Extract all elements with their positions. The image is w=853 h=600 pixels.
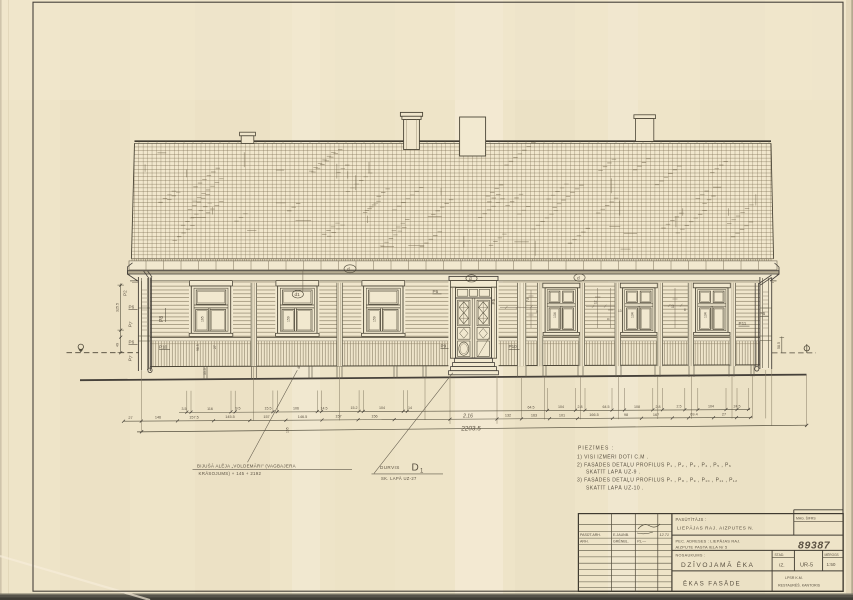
svg-text:58.5: 58.5	[777, 342, 781, 349]
svg-text:P9: P9	[441, 344, 447, 349]
svg-text:157: 157	[335, 415, 341, 419]
svg-text:145.5: 145.5	[225, 415, 235, 419]
svg-text:9: 9	[536, 310, 538, 314]
svg-text:163: 163	[531, 414, 537, 418]
svg-text:14.5: 14.5	[321, 406, 328, 410]
svg-text:LIEPĀJAS RAJ. AIZPUTES N.: LIEPĀJAS RAJ. AIZPUTES N.	[677, 525, 754, 531]
svg-text:134: 134	[553, 312, 557, 318]
svg-text:d: d	[577, 275, 580, 281]
svg-text:ARH.: ARH.	[580, 539, 589, 543]
svg-text:P8: P8	[159, 316, 165, 322]
svg-text:d: d	[347, 267, 350, 273]
svg-text:P10: P10	[159, 345, 168, 350]
svg-text:15.2: 15.2	[351, 406, 358, 410]
svg-text:LPSR K.M.: LPSR K.M.	[785, 576, 803, 580]
svg-text:NOSAUKUMS :: NOSAUKUMS :	[676, 554, 706, 558]
svg-text:104: 104	[558, 405, 564, 409]
svg-text:SKATĪT LAPĀ UZ-9 .: SKATĪT LAPĀ UZ-9 .	[586, 469, 641, 476]
svg-text:106: 106	[293, 406, 299, 410]
svg-text:134: 134	[631, 312, 635, 318]
svg-text:GRĒNBL.: GRĒNBL.	[613, 539, 629, 543]
svg-text:325.5: 325.5	[115, 303, 119, 312]
svg-text:KRĀSOJUMS) + 145 + 2192: KRĀSOJUMS) + 145 + 2192	[199, 471, 262, 476]
svg-text:64.5: 64.5	[528, 405, 535, 409]
svg-text:69.4: 69.4	[690, 413, 697, 417]
svg-text:AIZPUTE PASTA IELA Nr: AIZPUTE PASTA IELA Nr 5	[676, 545, 728, 550]
svg-text:35.5: 35.5	[203, 368, 207, 375]
svg-text:UR-5: UR-5	[800, 562, 813, 568]
svg-text:108: 108	[634, 405, 640, 409]
svg-text:1) VISI IZMĒRI DOTI C.M .: 1) VISI IZMĒRI DOTI C.M .	[577, 454, 649, 461]
svg-text:146: 146	[155, 416, 161, 420]
svg-text:SKATĪT LAPĀ UZ-10 .: SKATĪT LAPĀ UZ-10 .	[586, 485, 644, 492]
svg-text:101: 101	[559, 413, 565, 417]
svg-text:PIEZĪMES :: PIEZĪMES :	[578, 445, 614, 452]
svg-text:15.5: 15.5	[265, 407, 272, 411]
svg-text:MAG. ŠIFRS: MAG. ŠIFRS	[796, 515, 816, 520]
svg-text:159: 159	[287, 316, 291, 322]
svg-text:165: 165	[201, 316, 205, 322]
svg-text:64.5: 64.5	[603, 405, 610, 409]
svg-text:DZĪVOJAMĀ ĒKA: DZĪVOJAMĀ ĒKA	[681, 561, 755, 569]
svg-text:146.5: 146.5	[298, 415, 308, 419]
svg-text:P2: P2	[123, 290, 128, 296]
svg-text:132: 132	[505, 414, 511, 418]
svg-text:27: 27	[128, 416, 132, 420]
svg-text:167: 167	[653, 413, 659, 417]
svg-text:SK. LAPĀ UZ-27: SK. LAPĀ UZ-27	[381, 476, 417, 481]
svg-text:2.8: 2.8	[578, 405, 583, 409]
svg-text:P5: P5	[491, 298, 496, 304]
svg-text:155: 155	[286, 427, 290, 433]
svg-text:159: 159	[373, 316, 377, 322]
svg-text:9.5: 9.5	[236, 407, 241, 411]
svg-text:7.8: 7.8	[526, 297, 530, 302]
svg-text:RESTAURĒŠ. KANTORIS: RESTAURĒŠ. KANTORIS	[778, 582, 821, 587]
svg-text:d1: d1	[295, 292, 301, 298]
svg-text:P10: P10	[509, 344, 518, 349]
svg-text:116: 116	[207, 407, 213, 411]
svg-text:P6: P6	[129, 305, 135, 310]
svg-text:P6: P6	[433, 289, 439, 294]
svg-text:D: D	[412, 463, 419, 474]
svg-text:3.5: 3.5	[182, 407, 187, 411]
svg-text:157.5: 157.5	[189, 415, 199, 419]
svg-text:2.16: 2.16	[462, 414, 473, 420]
svg-text:PASŪT.ARH.: PASŪT.ARH.	[580, 533, 601, 537]
svg-text:MĒROGS: MĒROGS	[825, 553, 839, 557]
svg-text:2) FASĀDES DETAĻU PROFILUS: 2) FASĀDES DETAĻU PROFILUS P₁ , P₂ , P₃ …	[577, 462, 731, 469]
svg-text:2.5: 2.5	[677, 405, 682, 409]
svg-text:13: 13	[618, 309, 622, 313]
svg-text:14: 14	[408, 406, 412, 410]
svg-text:2203.5: 2203.5	[460, 425, 481, 432]
svg-text:12: 12	[594, 300, 598, 304]
svg-text:P6: P6	[760, 311, 766, 316]
svg-text:IZ.: IZ.	[779, 562, 785, 568]
svg-text:27: 27	[213, 345, 217, 349]
svg-text:12.71: 12.71	[660, 533, 670, 537]
svg-text:27: 27	[722, 413, 726, 417]
svg-text:P6: P6	[129, 340, 135, 345]
svg-text:166.5: 166.5	[589, 413, 599, 417]
svg-text:40: 40	[297, 365, 301, 369]
svg-text:ĒKAS FASĀDE: ĒKAS FASĀDE	[683, 581, 741, 588]
svg-text:PASŪTĪTĀJS :: PASŪTĪTĀJS :	[676, 517, 707, 522]
svg-text:12: 12	[671, 304, 675, 308]
svg-text:8: 8	[684, 308, 686, 312]
svg-text:P11: P11	[739, 321, 747, 326]
svg-text:P.L—: P.L—	[637, 539, 646, 543]
svg-text:3) FASĀDES DETAĻU PROFILUS: 3) FASĀDES DETAĻU PROFILUS P₇ , P₈ , P₉ …	[577, 477, 737, 484]
svg-text:d: d	[469, 276, 472, 282]
svg-text:156: 156	[371, 414, 377, 418]
svg-text:8: 8	[607, 318, 611, 320]
svg-text:98: 98	[624, 413, 628, 417]
svg-text:89387: 89387	[798, 540, 831, 552]
svg-text:104: 104	[708, 405, 714, 409]
svg-text:157: 157	[263, 415, 269, 419]
svg-text:134: 134	[704, 312, 708, 318]
svg-text:98.5: 98.5	[196, 344, 200, 351]
svg-text:49: 49	[115, 343, 119, 347]
svg-text:BIJUŠĀ ALĒJA „VOLDEMĀRI" (VAG: BIJUŠĀ ALĒJA „VOLDEMĀRI" (VAGBAJERA	[197, 464, 296, 469]
svg-text:DURVIS: DURVIS	[380, 465, 400, 470]
svg-text:STAD.: STAD.	[775, 553, 785, 557]
svg-text:E.JAUNB.: E.JAUNB.	[613, 533, 629, 537]
svg-text:24.5: 24.5	[734, 405, 741, 409]
svg-text:104: 104	[379, 406, 385, 410]
svg-text:PEC. ADRESES : LIEPĀJAS: PEC. ADRESES : LIEPĀJAS RAJ.	[676, 539, 741, 544]
svg-text:1:50: 1:50	[827, 562, 836, 567]
svg-text:2.8: 2.8	[656, 405, 661, 409]
